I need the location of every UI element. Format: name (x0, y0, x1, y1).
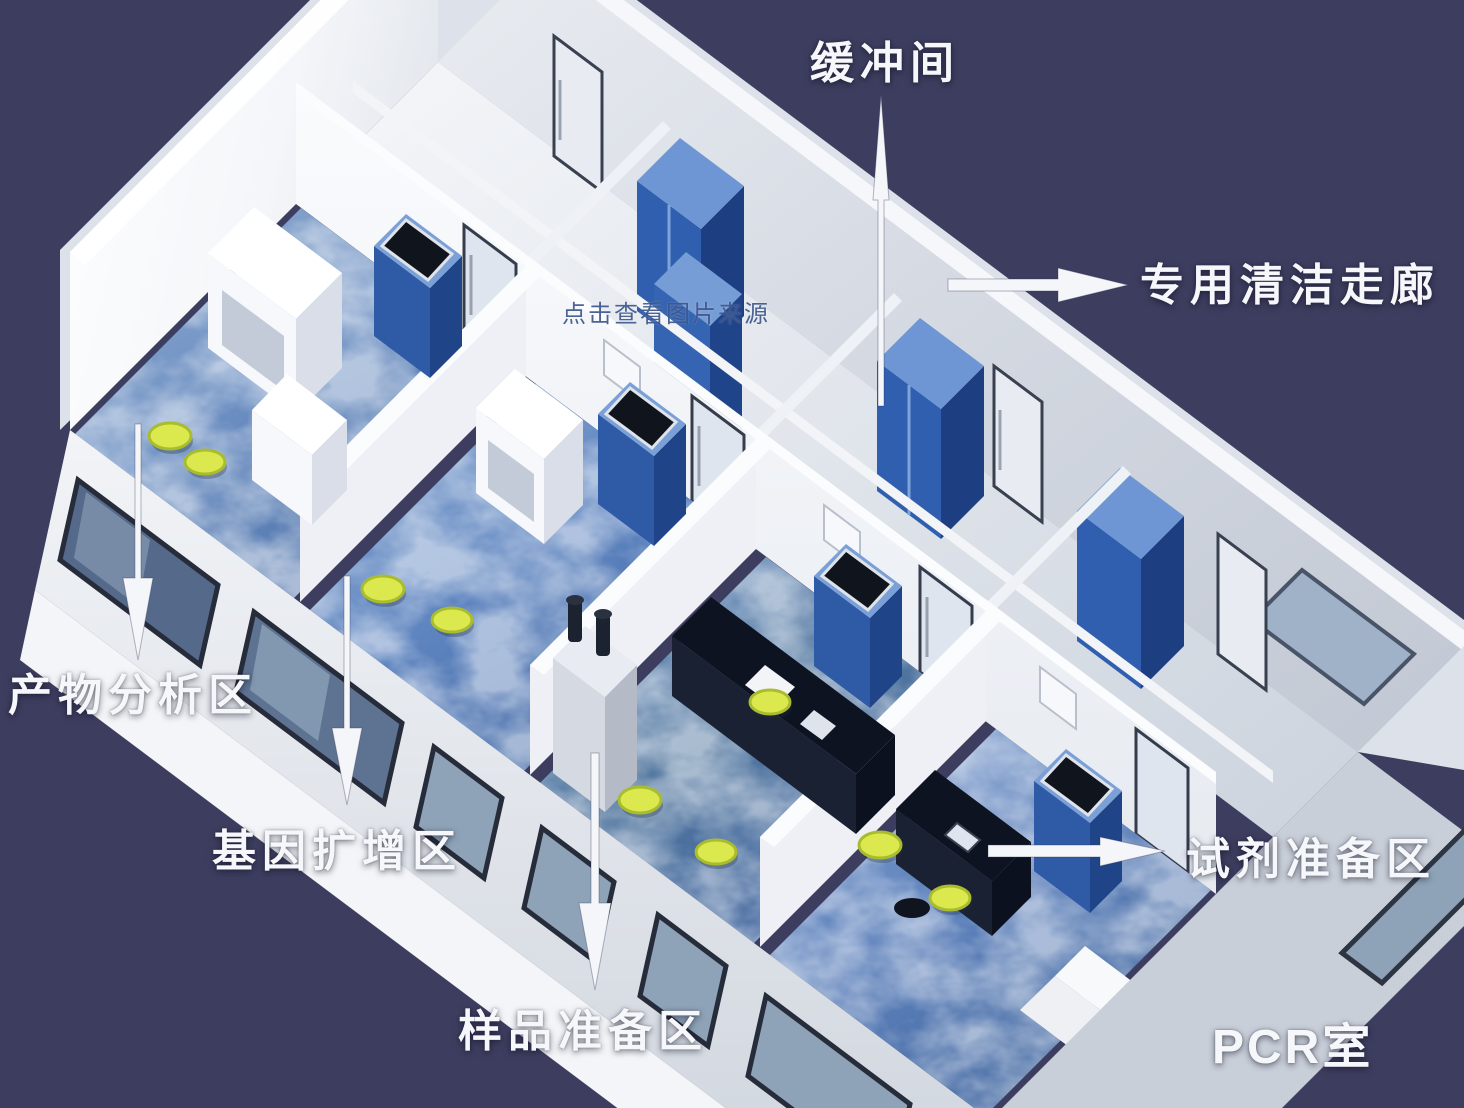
label-reagent-preparation: 试剂准备区 (1186, 836, 1436, 884)
pcr-lab-diagram: 缓冲间 专用清洁走廊 产物分析区 基因扩增区 样品准备区 试剂准备区 PCR室 … (0, 0, 1464, 1108)
label-product-analysis: 产物分析区 (8, 672, 258, 720)
stool (859, 832, 903, 863)
isometric-lab-rendering (0, 0, 1464, 1108)
label-gene-amplification: 基因扩增区 (212, 828, 462, 876)
chair (894, 898, 930, 918)
image-source-watermark[interactable]: 点击查看图片来源 (562, 294, 770, 329)
label-pcr-room: PCR室 (1212, 1022, 1373, 1075)
label-sample-preparation: 样品准备区 (458, 1008, 708, 1056)
label-clean-corridor: 专用清洁走廊 (1140, 262, 1440, 310)
label-buffer-room: 缓冲间 (810, 40, 960, 88)
